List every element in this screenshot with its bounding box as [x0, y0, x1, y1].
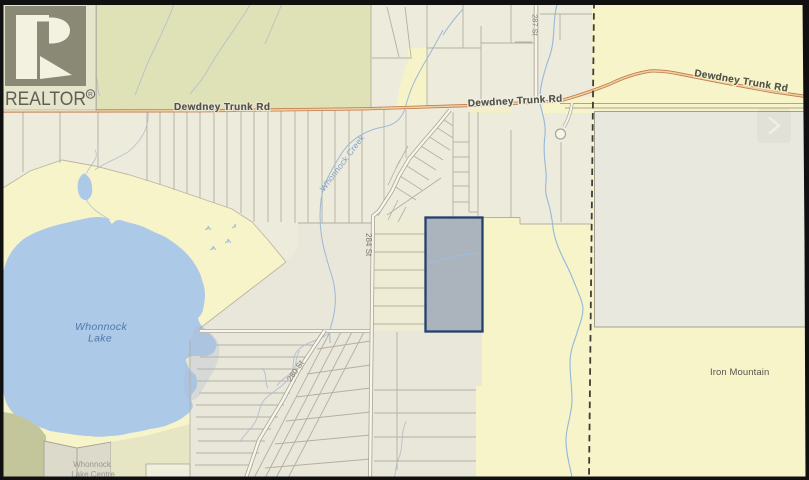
- svg-text:Whonnock: Whonnock: [75, 321, 127, 333]
- svg-text:Whonnock: Whonnock: [73, 460, 112, 469]
- svg-text:287 St: 287 St: [531, 14, 540, 37]
- svg-text:R: R: [88, 92, 93, 99]
- svg-text:284 St: 284 St: [364, 233, 373, 257]
- svg-text:REALTOR: REALTOR: [5, 89, 86, 110]
- svg-text:Lake: Lake: [88, 333, 112, 345]
- svg-text:Dewdney Trunk Rd: Dewdney Trunk Rd: [174, 102, 270, 113]
- svg-text:Iron Mountain: Iron Mountain: [710, 367, 769, 378]
